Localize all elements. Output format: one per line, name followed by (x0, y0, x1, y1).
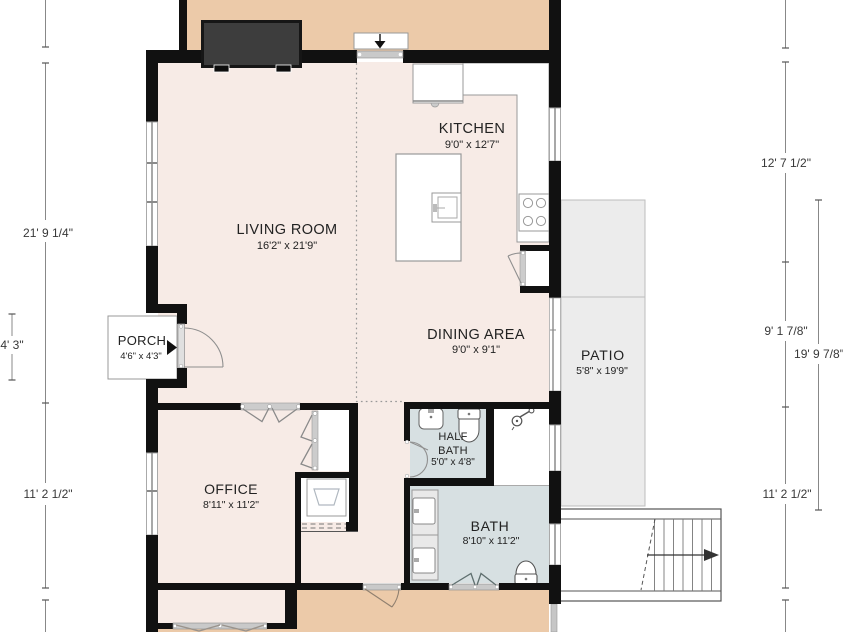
svg-text:9'0" x 12'7": 9'0" x 12'7" (445, 139, 499, 151)
svg-text:5'0" x 4'8": 5'0" x 4'8" (431, 457, 475, 468)
svg-text:8'10" x 11'2": 8'10" x 11'2" (463, 535, 520, 547)
svg-text:BATH: BATH (471, 518, 510, 534)
svg-text:HALF: HALF (438, 431, 467, 443)
svg-text:LIVING ROOM: LIVING ROOM (236, 222, 337, 238)
svg-text:8'11" x 11'2": 8'11" x 11'2" (203, 499, 259, 511)
svg-text:12' 7 1/2": 12' 7 1/2" (761, 156, 811, 170)
svg-text:9'0" x 9'1": 9'0" x 9'1" (452, 344, 500, 356)
svg-text:4' 3": 4' 3" (0, 338, 23, 352)
svg-text:11' 2 1/2": 11' 2 1/2" (762, 487, 811, 501)
svg-text:21' 9 1/4": 21' 9 1/4" (23, 226, 73, 240)
svg-text:9' 1 7/8": 9' 1 7/8" (764, 324, 807, 338)
svg-text:DINING AREA: DINING AREA (427, 327, 525, 343)
svg-text:OFFICE: OFFICE (204, 481, 258, 497)
svg-text:BATH: BATH (438, 445, 468, 457)
svg-text:19' 9 7/8": 19' 9 7/8" (794, 347, 843, 361)
svg-text:4'6" x 4'3": 4'6" x 4'3" (120, 351, 162, 362)
svg-text:16'2" x 21'9": 16'2" x 21'9" (257, 240, 317, 252)
svg-text:11' 2 1/2": 11' 2 1/2" (23, 487, 72, 501)
svg-text:5'8" x 19'9": 5'8" x 19'9" (576, 365, 628, 377)
svg-text:PORCH: PORCH (118, 333, 166, 348)
svg-text:KITCHEN: KITCHEN (439, 121, 505, 137)
svg-text:PATIO: PATIO (581, 347, 625, 363)
